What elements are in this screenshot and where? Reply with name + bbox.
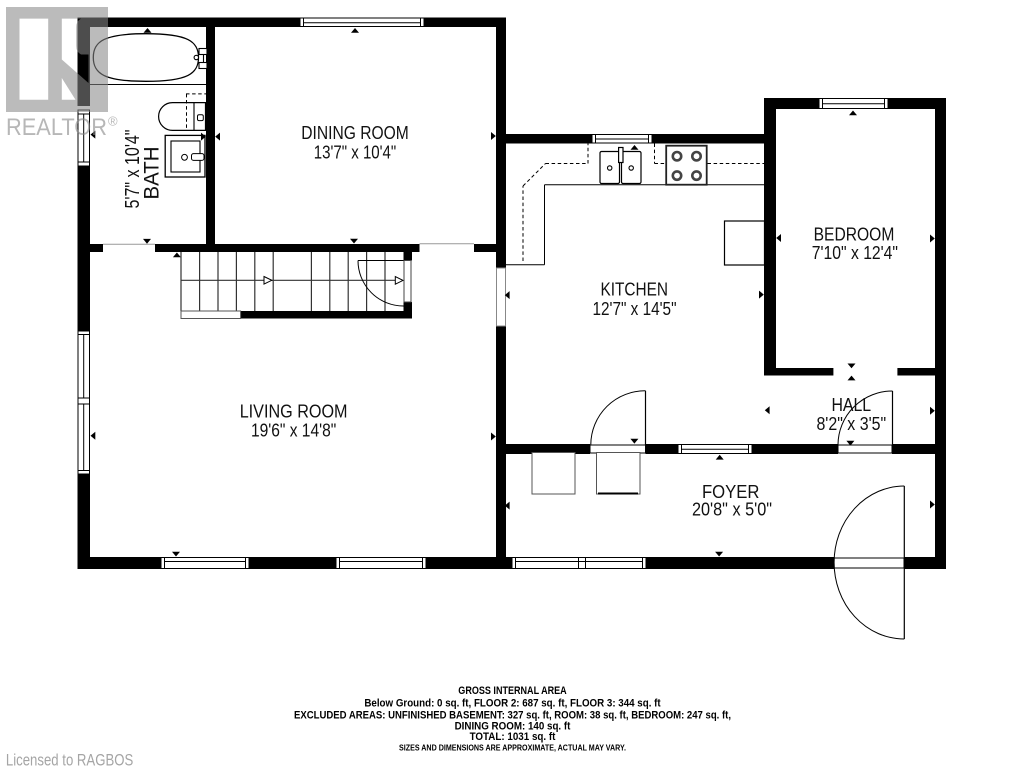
svg-text:GROSS INTERNAL AREA: GROSS INTERNAL AREA: [458, 685, 566, 697]
svg-text:BATH: BATH: [140, 147, 163, 200]
svg-text:13'7" x 10'4": 13'7" x 10'4": [314, 142, 397, 162]
svg-text:Below Ground: 0 sq. ft, FLOOR: Below Ground: 0 sq. ft, FLOOR 2: 687 sq.…: [364, 697, 661, 709]
svg-text:KITCHEN: KITCHEN: [600, 280, 668, 300]
svg-text:HALL: HALL: [831, 395, 871, 415]
svg-text:LIVING ROOM: LIVING ROOM: [240, 402, 348, 422]
svg-text:TOTAL: 1031 sq. ft: TOTAL: 1031 sq. ft: [470, 731, 556, 743]
svg-text:REALTOR: REALTOR: [6, 114, 107, 141]
svg-text:EXCLUDED AREAS: UNFINISHED BAS: EXCLUDED AREAS: UNFINISHED BASEMENT: 327…: [294, 709, 731, 721]
svg-text:12'7" x 14'5": 12'7" x 14'5": [593, 299, 677, 319]
svg-text:7'10" x 12'4": 7'10" x 12'4": [812, 243, 898, 263]
svg-text:8'2" x 3'5": 8'2" x 3'5": [816, 414, 886, 434]
svg-text:DINING ROOM: DINING ROOM: [301, 123, 409, 143]
svg-text:20'8" x 5'0": 20'8" x 5'0": [692, 500, 772, 520]
svg-text:19'6" x 14'8": 19'6" x 14'8": [251, 421, 336, 441]
svg-text:5'7" x 10'4": 5'7" x 10'4": [122, 130, 144, 209]
svg-text:Licensed to RAGBOS: Licensed to RAGBOS: [6, 750, 133, 768]
svg-text:®: ®: [108, 114, 118, 129]
svg-text:BEDROOM: BEDROOM: [814, 225, 895, 245]
svg-text:SIZES AND DIMENSIONS ARE APPRO: SIZES AND DIMENSIONS ARE APPROXIMATE, AC…: [399, 742, 626, 752]
